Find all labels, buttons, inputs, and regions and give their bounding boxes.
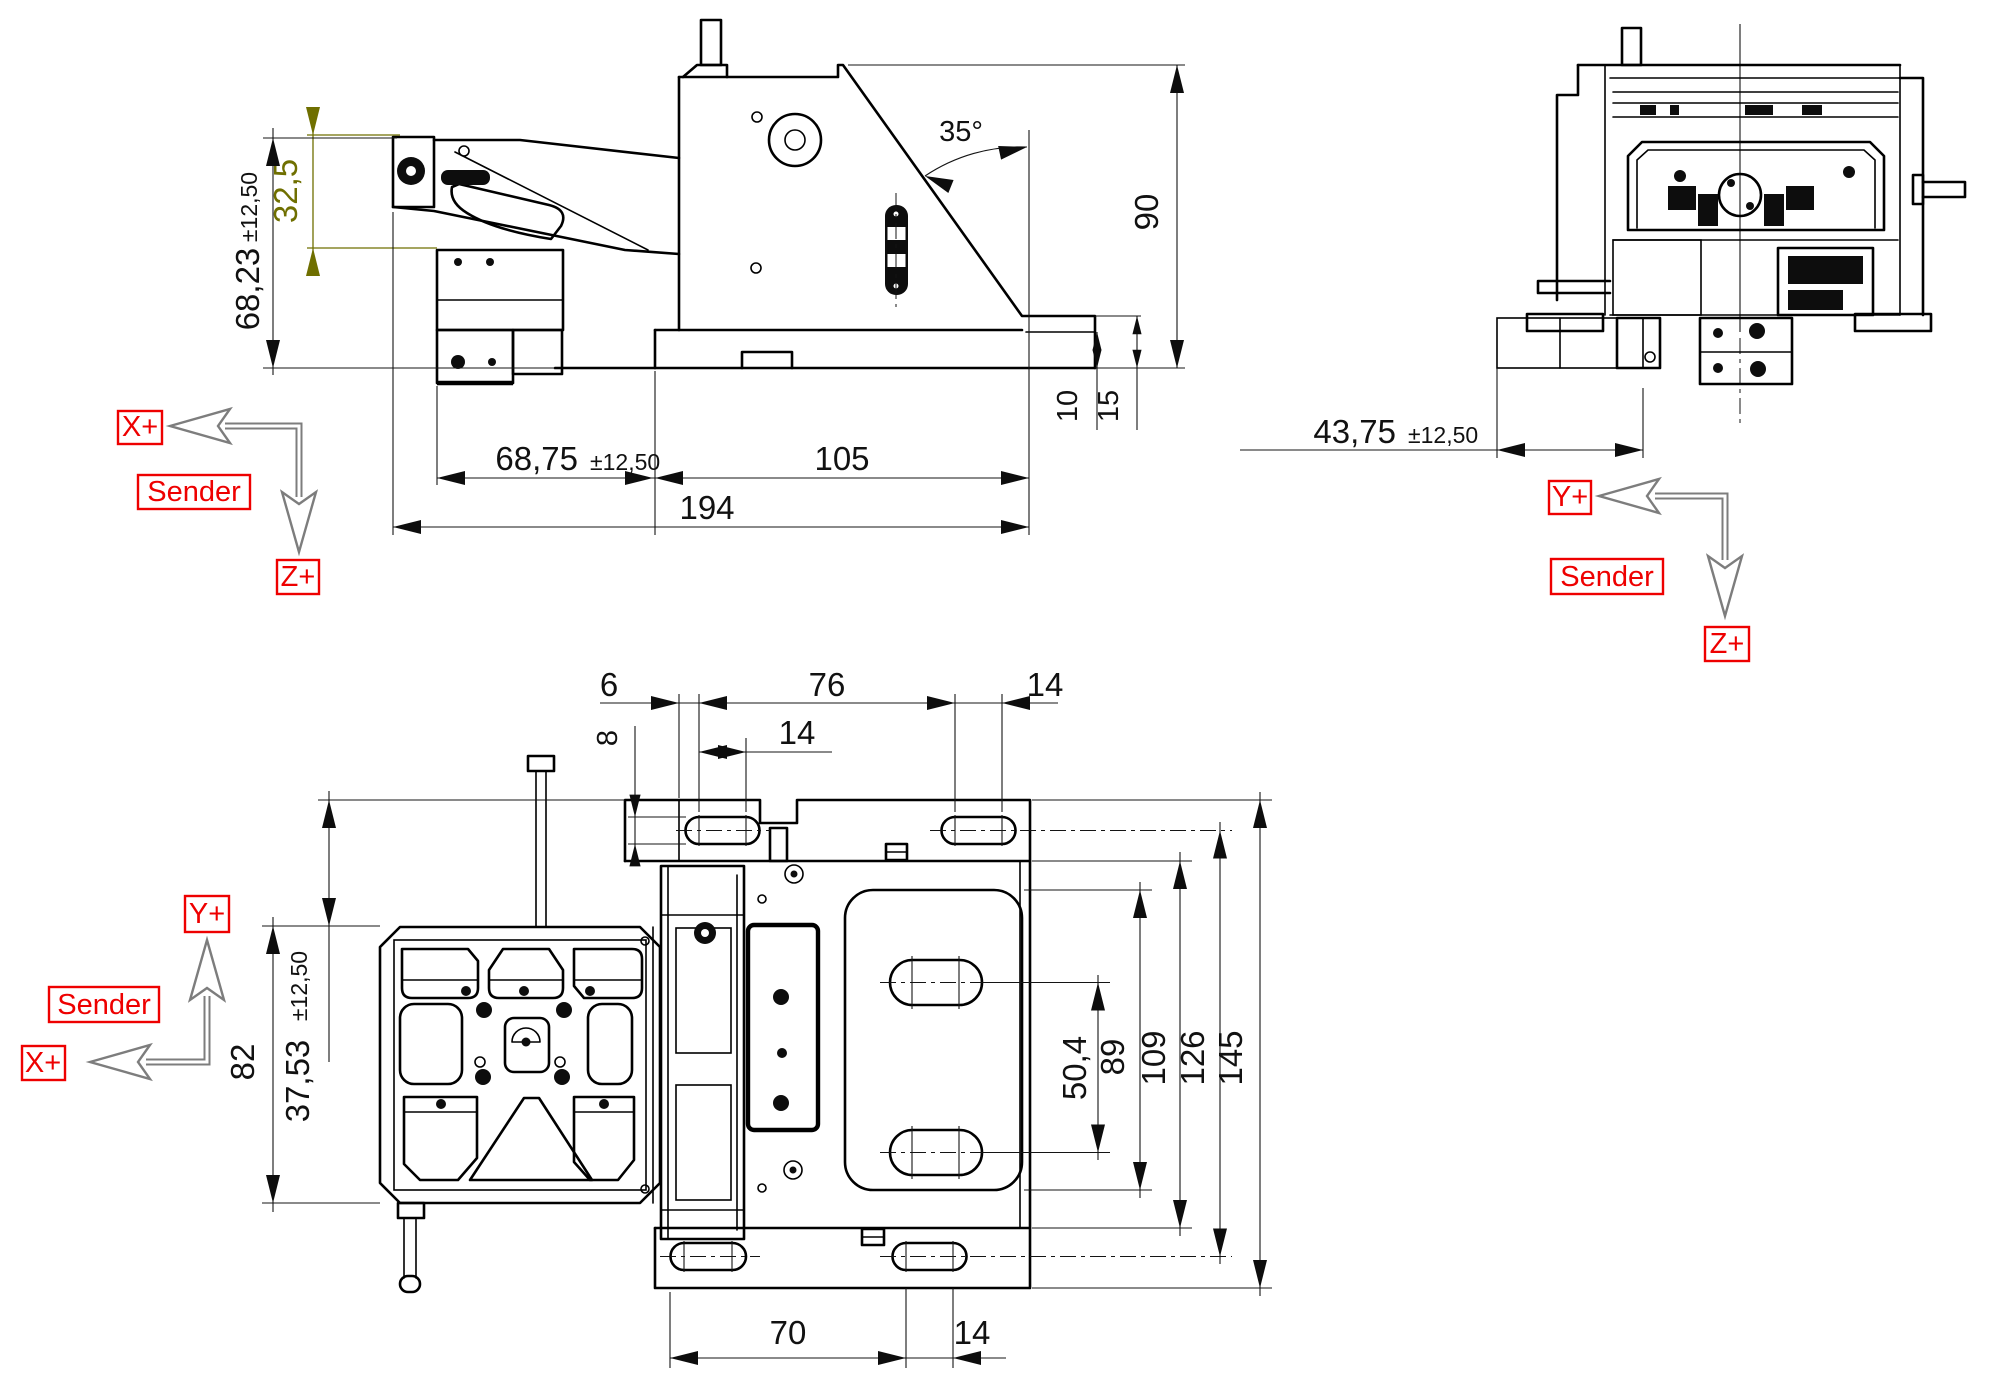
- axis-z-label: Z+: [281, 561, 316, 593]
- axis-z-label: Z+: [1710, 628, 1745, 660]
- dim-70-label: 70: [770, 1314, 807, 1351]
- dim-43-75-tol-label: ±12,50: [1408, 422, 1478, 448]
- dim-35deg-label: 35°: [939, 116, 983, 148]
- dim-145-label: 145: [1212, 1030, 1249, 1085]
- axis-y-label: Y+: [189, 898, 225, 930]
- dim-10-label: 10: [1052, 390, 1084, 422]
- axis-x-label: X+: [122, 411, 158, 443]
- dim-82-label: 82: [224, 1044, 261, 1081]
- axis-y-label: Y+: [1552, 481, 1588, 513]
- sender-label: Sender: [1560, 561, 1654, 593]
- dim-15-label: 15: [1093, 390, 1125, 422]
- dim-89-label: 89: [1094, 1039, 1131, 1076]
- dim-105-label: 105: [814, 440, 869, 477]
- technical-drawing: 32,5 68,23 ±12,50 90 10 15 35°: [0, 0, 2000, 1390]
- axis-x-label: X+: [25, 1047, 61, 1079]
- dim-90-label: 90: [1128, 194, 1165, 231]
- dim-76-label: 76: [809, 666, 846, 703]
- dim-8-label: 8: [592, 730, 624, 746]
- dim-50-4-label: 50,4: [1056, 1036, 1093, 1100]
- dim-68-75-tol-label: ±12,50: [590, 449, 660, 475]
- dim-43-75-label: 43,75: [1313, 413, 1396, 450]
- dim-14-inner-label: 14: [779, 714, 816, 751]
- dim-14-bottom-label: 14: [954, 1314, 991, 1351]
- dim-68-23-label: 68,23: [229, 248, 266, 331]
- dim-68-75-label: 68,75: [495, 440, 578, 477]
- dim-194-label: 194: [679, 489, 734, 526]
- dim-37-53-tol-label: ±12,50: [286, 951, 312, 1021]
- sender-label: Sender: [147, 476, 241, 508]
- dim-126-label: 126: [1174, 1030, 1211, 1085]
- dim-37-53-label: 37,53: [279, 1040, 316, 1123]
- dim-6-label: 6: [600, 666, 618, 703]
- drawing-canvas: 32,5 68,23 ±12,50 90 10 15 35°: [0, 0, 2000, 1390]
- dim-14-right-label: 14: [1027, 666, 1064, 703]
- sender-label: Sender: [57, 989, 151, 1021]
- dim-109-label: 109: [1135, 1030, 1172, 1085]
- side-slot: [885, 205, 908, 295]
- dim-68-23-tol-label: ±12,50: [236, 172, 262, 242]
